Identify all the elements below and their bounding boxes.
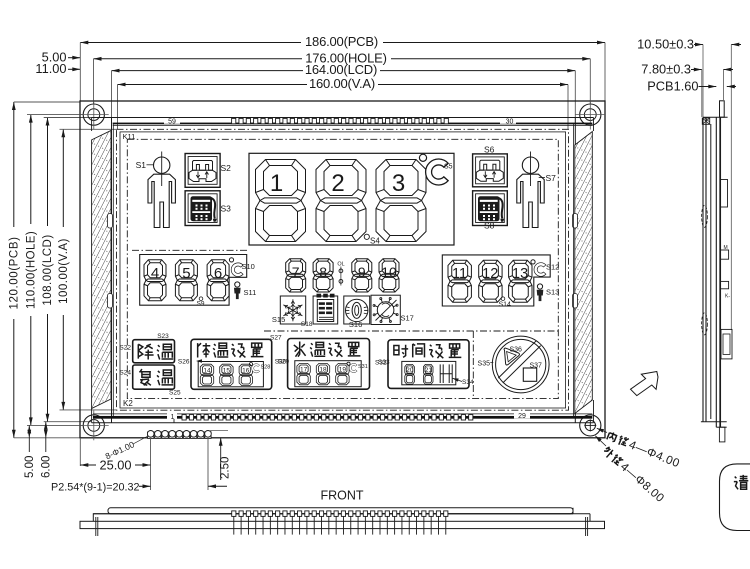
svg-text:29: 29 bbox=[518, 413, 526, 420]
svg-text:S9: S9 bbox=[197, 301, 205, 308]
svg-text:7: 7 bbox=[292, 264, 300, 280]
svg-text:M: M bbox=[724, 245, 728, 251]
svg-text:S31: S31 bbox=[358, 364, 368, 370]
svg-text:4: 4 bbox=[151, 265, 159, 282]
svg-text:S27: S27 bbox=[270, 335, 282, 342]
svg-text:100.00(V.A): 100.00(V.A) bbox=[58, 238, 70, 304]
svg-text:OL: OL bbox=[337, 261, 344, 267]
svg-text:6.00: 6.00 bbox=[40, 456, 52, 478]
svg-text:S24: S24 bbox=[119, 370, 131, 377]
svg-text:S32: S32 bbox=[375, 360, 387, 367]
svg-text:K-: K- bbox=[725, 294, 730, 300]
svg-text:S10: S10 bbox=[242, 262, 255, 271]
svg-text:12: 12 bbox=[482, 266, 498, 282]
svg-text:30: 30 bbox=[506, 118, 514, 125]
svg-text:S16: S16 bbox=[349, 320, 362, 329]
svg-text:S12: S12 bbox=[546, 262, 559, 271]
svg-text:S15: S15 bbox=[272, 315, 285, 324]
svg-text:K2: K2 bbox=[123, 399, 133, 408]
svg-text:160.00(V.A): 160.00(V.A) bbox=[309, 76, 375, 91]
svg-text:186.00(PCB): 186.00(PCB) bbox=[305, 34, 378, 49]
svg-text:5: 5 bbox=[182, 265, 190, 282]
svg-text:11: 11 bbox=[452, 266, 467, 282]
svg-text:S14: S14 bbox=[499, 302, 512, 309]
svg-text:17: 17 bbox=[300, 367, 308, 374]
svg-text:S22: S22 bbox=[119, 345, 131, 352]
svg-text:K11: K11 bbox=[123, 132, 136, 141]
svg-text:S4: S4 bbox=[370, 237, 380, 246]
svg-text:9: 9 bbox=[358, 264, 366, 280]
svg-text:S34: S34 bbox=[462, 379, 474, 386]
svg-text:S17: S17 bbox=[401, 314, 414, 323]
svg-text:S37: S37 bbox=[530, 363, 543, 370]
svg-text:S7: S7 bbox=[546, 173, 557, 183]
svg-text:S3: S3 bbox=[221, 204, 232, 214]
svg-text:PCB1.60: PCB1.60 bbox=[647, 78, 698, 93]
svg-text:10: 10 bbox=[381, 264, 397, 280]
svg-text:25.00: 25.00 bbox=[99, 458, 131, 473]
svg-text:S13: S13 bbox=[546, 288, 559, 297]
svg-text:S23: S23 bbox=[157, 333, 169, 340]
svg-text:13: 13 bbox=[512, 266, 528, 282]
svg-text:S28: S28 bbox=[261, 365, 271, 371]
svg-text:P2.54*(9-1)=20.32: P2.54*(9-1)=20.32 bbox=[51, 482, 140, 494]
svg-text:S35: S35 bbox=[478, 360, 491, 367]
svg-text:110.00(HOLE): 110.00(HOLE) bbox=[26, 231, 38, 309]
svg-text:11.00: 11.00 bbox=[35, 61, 66, 76]
svg-text:S5: S5 bbox=[444, 164, 453, 171]
svg-text:5.00: 5.00 bbox=[24, 456, 36, 478]
svg-text:S6: S6 bbox=[484, 145, 495, 155]
svg-text:1: 1 bbox=[270, 170, 283, 197]
svg-text:S36: S36 bbox=[510, 346, 523, 353]
svg-text:FRONT: FRONT bbox=[320, 489, 363, 503]
svg-text:2: 2 bbox=[331, 170, 344, 197]
svg-text:S1: S1 bbox=[136, 160, 147, 170]
svg-text:8: 8 bbox=[319, 264, 327, 280]
svg-text:7.80±0.3: 7.80±0.3 bbox=[641, 61, 691, 76]
svg-text:S18: S18 bbox=[301, 321, 313, 328]
svg-text:16: 16 bbox=[242, 368, 250, 375]
svg-text:S30: S30 bbox=[275, 359, 287, 366]
svg-text:S26: S26 bbox=[178, 359, 190, 366]
svg-text:15: 15 bbox=[223, 368, 231, 375]
svg-text:S11: S11 bbox=[244, 288, 257, 297]
svg-text:120.00(PCB): 120.00(PCB) bbox=[9, 236, 21, 309]
svg-text:19: 19 bbox=[339, 367, 347, 374]
svg-text:3: 3 bbox=[392, 170, 405, 197]
svg-text:6: 6 bbox=[214, 265, 222, 282]
svg-text:10.50±0.3: 10.50±0.3 bbox=[637, 36, 694, 51]
svg-text:1: 1 bbox=[171, 414, 175, 421]
svg-text:108.00(LCD): 108.00(LCD) bbox=[42, 234, 54, 305]
svg-text:14: 14 bbox=[203, 368, 211, 375]
svg-text:S8: S8 bbox=[484, 221, 495, 231]
svg-text:18: 18 bbox=[319, 367, 327, 374]
svg-text:S2: S2 bbox=[221, 163, 232, 173]
svg-text:20: 20 bbox=[406, 367, 414, 374]
svg-text:164.00(LCD): 164.00(LCD) bbox=[305, 62, 377, 77]
svg-text:21: 21 bbox=[425, 367, 433, 374]
svg-text:59: 59 bbox=[168, 118, 176, 125]
svg-text:2.50: 2.50 bbox=[220, 457, 232, 479]
svg-text:S25: S25 bbox=[169, 389, 181, 396]
